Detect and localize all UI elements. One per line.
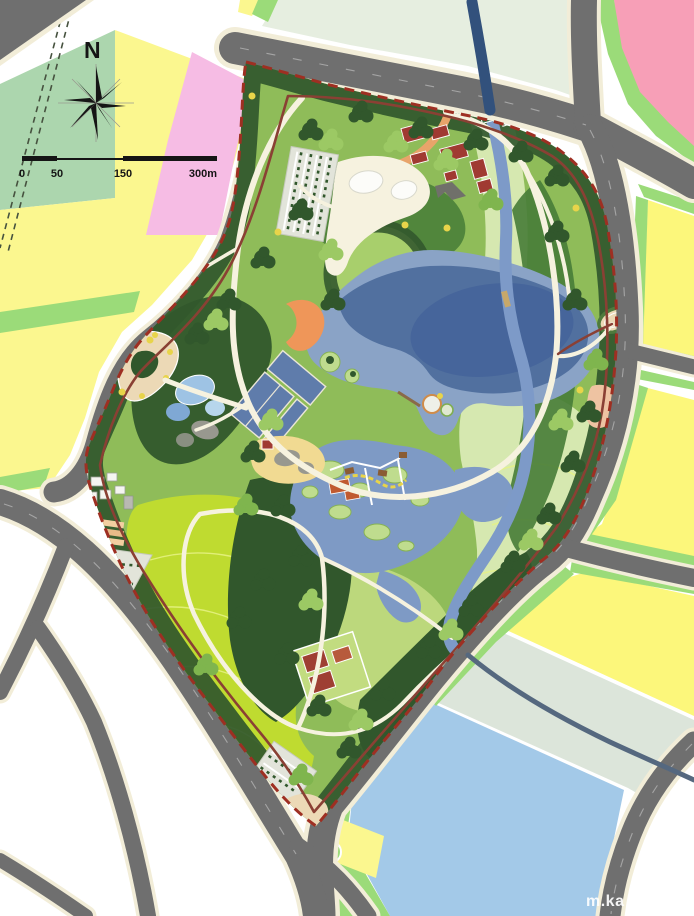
scale-tick-300m: 300m [189, 168, 217, 180]
scale-tick-150: 150 [114, 168, 132, 180]
scale-tick-50: 50 [51, 168, 63, 180]
scale-tick-0: 0 [19, 168, 25, 180]
north-label: N [84, 37, 101, 63]
master-plan-map: N 0 50 150 300m m.ka [0, 0, 694, 916]
master-plan-page: N 0 50 150 300m m.ka [0, 0, 694, 916]
parcel-yellow-east-1 [642, 200, 694, 358]
watermark: m.ka [586, 893, 624, 910]
